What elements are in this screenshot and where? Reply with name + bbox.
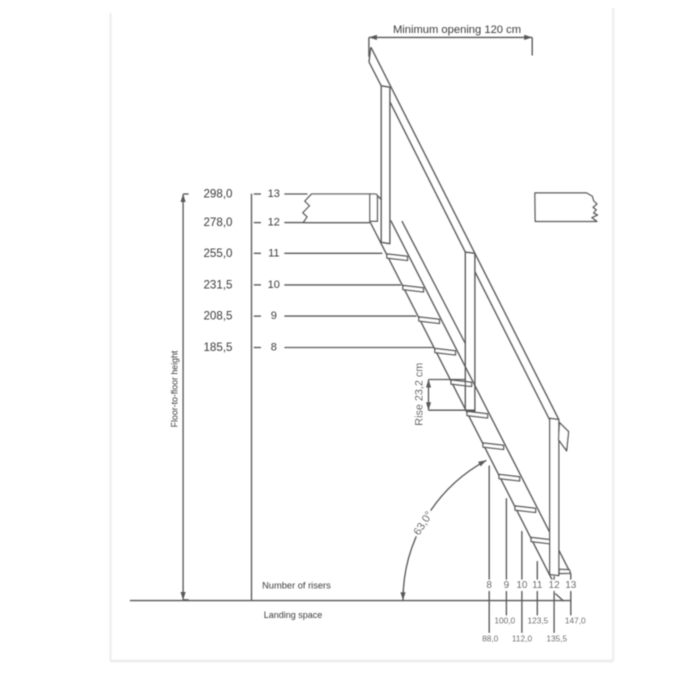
svg-text:Number of risers: Number of risers bbox=[262, 580, 331, 590]
svg-text:13: 13 bbox=[565, 580, 577, 591]
svg-text:255,0: 255,0 bbox=[203, 247, 232, 260]
svg-text:231,5: 231,5 bbox=[203, 278, 232, 291]
svg-text:298,0: 298,0 bbox=[203, 188, 232, 201]
svg-text:135,5: 135,5 bbox=[546, 634, 567, 644]
svg-text:13: 13 bbox=[268, 188, 280, 200]
svg-text:112,0: 112,0 bbox=[512, 634, 533, 644]
svg-text:9: 9 bbox=[504, 580, 510, 591]
svg-text:Landing space: Landing space bbox=[264, 610, 323, 620]
svg-text:9: 9 bbox=[271, 310, 277, 322]
svg-text:8: 8 bbox=[271, 342, 277, 354]
svg-text:11: 11 bbox=[268, 247, 279, 259]
svg-text:10: 10 bbox=[516, 580, 528, 591]
svg-text:8: 8 bbox=[486, 580, 492, 591]
svg-text:12: 12 bbox=[268, 217, 280, 229]
svg-text:Rise 23,2 cm: Rise 23,2 cm bbox=[413, 363, 425, 426]
svg-text:100,0: 100,0 bbox=[494, 616, 515, 626]
svg-text:10: 10 bbox=[268, 279, 280, 291]
svg-text:12: 12 bbox=[549, 580, 561, 591]
svg-text:185,5: 185,5 bbox=[203, 341, 232, 354]
svg-text:63,0°: 63,0° bbox=[411, 509, 435, 537]
svg-text:Minimum opening 120 cm: Minimum opening 120 cm bbox=[393, 24, 521, 36]
svg-text:278,0: 278,0 bbox=[203, 216, 232, 229]
svg-text:11: 11 bbox=[532, 580, 543, 591]
svg-text:147,0: 147,0 bbox=[565, 616, 586, 626]
svg-text:208,5: 208,5 bbox=[203, 310, 232, 323]
svg-text:123,5: 123,5 bbox=[528, 616, 549, 626]
svg-text:88,0: 88,0 bbox=[482, 634, 499, 644]
svg-text:Floor-to-floor height: Floor-to-floor height bbox=[170, 350, 180, 427]
